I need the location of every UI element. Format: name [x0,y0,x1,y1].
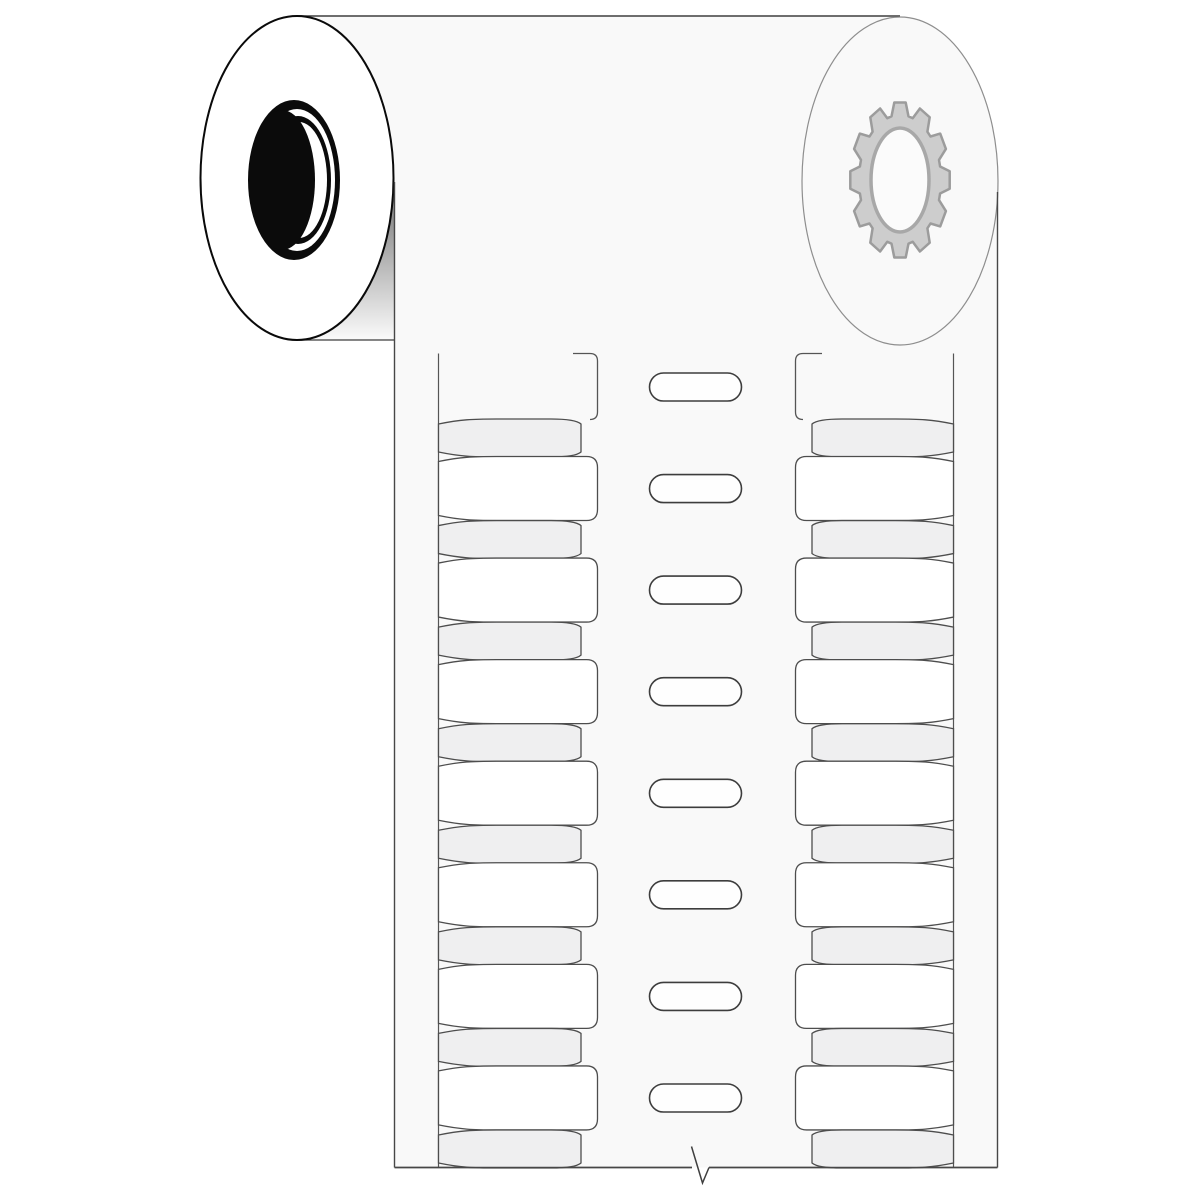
sprocket-hole [650,779,742,807]
gray-label [439,419,582,457]
label-roll-product-illustration [0,0,1200,1200]
gray-label [812,825,954,863]
sprocket-hole [650,881,742,909]
gray-label [439,1130,582,1168]
sprocket-hole [650,576,742,604]
gray-label [812,724,954,762]
white-label [439,558,598,622]
gray-label [439,724,582,762]
gear-hub-hole [871,128,929,232]
white-label [796,964,954,1028]
gray-label [812,1130,954,1168]
gray-label [812,521,954,559]
label-column-left [439,354,598,1168]
white-label [439,964,598,1028]
white-label [796,558,954,622]
sprocket-hole [650,475,742,503]
white-label [439,761,598,825]
core-bore [249,110,315,250]
gray-label [812,927,954,965]
gray-label [439,1028,582,1066]
gray-label [812,622,954,660]
sprocket-hole [650,373,742,401]
sprocket-hole [650,678,742,706]
white-label [796,1066,954,1130]
gray-label [439,927,582,965]
white-label [439,660,598,724]
white-label [439,457,598,521]
white-label [796,863,954,927]
gray-label [439,825,582,863]
gray-label [439,521,582,559]
white-label [796,660,954,724]
roll-core-icon [248,100,340,260]
label-roll-illustration [0,0,1200,1200]
white-label [796,761,954,825]
gray-label [812,419,954,457]
sprocket-hole [650,982,742,1010]
white-label [439,863,598,927]
label-column-right [796,354,954,1168]
gray-label [439,622,582,660]
gray-label [812,1028,954,1066]
white-label [796,457,954,521]
sprocket-hole [650,1084,742,1112]
white-label [439,1066,598,1130]
